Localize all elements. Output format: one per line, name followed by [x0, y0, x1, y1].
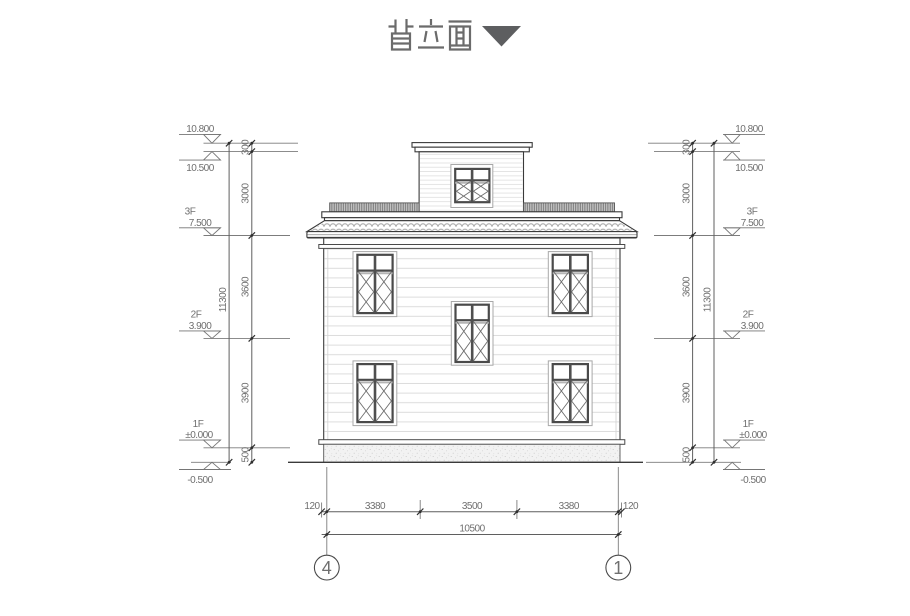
svg-text:120: 120: [623, 501, 639, 512]
svg-text:7.500: 7.500: [741, 218, 764, 229]
svg-text:120: 120: [304, 501, 320, 512]
svg-text:±0.000: ±0.000: [739, 430, 767, 441]
svg-text:2F: 2F: [743, 310, 754, 321]
svg-text:10.500: 10.500: [735, 163, 764, 174]
svg-text:10500: 10500: [459, 524, 485, 535]
svg-text:3F: 3F: [185, 207, 196, 218]
svg-text:10.800: 10.800: [735, 124, 764, 135]
svg-text:1F: 1F: [743, 419, 754, 430]
svg-text:3380: 3380: [365, 501, 386, 512]
svg-text:10.500: 10.500: [186, 163, 215, 174]
svg-text:10.800: 10.800: [186, 124, 215, 135]
svg-text:7.500: 7.500: [189, 218, 212, 229]
svg-text:3600: 3600: [681, 276, 692, 297]
svg-text:3900: 3900: [681, 382, 692, 403]
svg-text:4: 4: [322, 558, 332, 578]
svg-text:-0.500: -0.500: [187, 475, 213, 486]
svg-text:300: 300: [241, 139, 252, 155]
svg-text:3000: 3000: [681, 182, 692, 203]
svg-text:500: 500: [241, 446, 252, 462]
svg-text:3900: 3900: [241, 382, 252, 403]
svg-text:3600: 3600: [241, 276, 252, 297]
svg-text:11300: 11300: [218, 287, 229, 313]
svg-text:±0.000: ±0.000: [185, 430, 213, 441]
svg-text:300: 300: [681, 139, 692, 155]
svg-text:3380: 3380: [559, 501, 580, 512]
svg-text:3000: 3000: [241, 182, 252, 203]
svg-text:3F: 3F: [747, 207, 758, 218]
svg-text:3500: 3500: [462, 501, 483, 512]
svg-text:1F: 1F: [193, 419, 204, 430]
svg-text:500: 500: [681, 446, 692, 462]
svg-text:-0.500: -0.500: [740, 475, 766, 486]
svg-text:3.900: 3.900: [189, 321, 212, 332]
svg-text:11300: 11300: [703, 287, 714, 313]
svg-text:3.900: 3.900: [741, 321, 764, 332]
svg-text:1: 1: [613, 558, 623, 578]
svg-text:2F: 2F: [191, 310, 202, 321]
